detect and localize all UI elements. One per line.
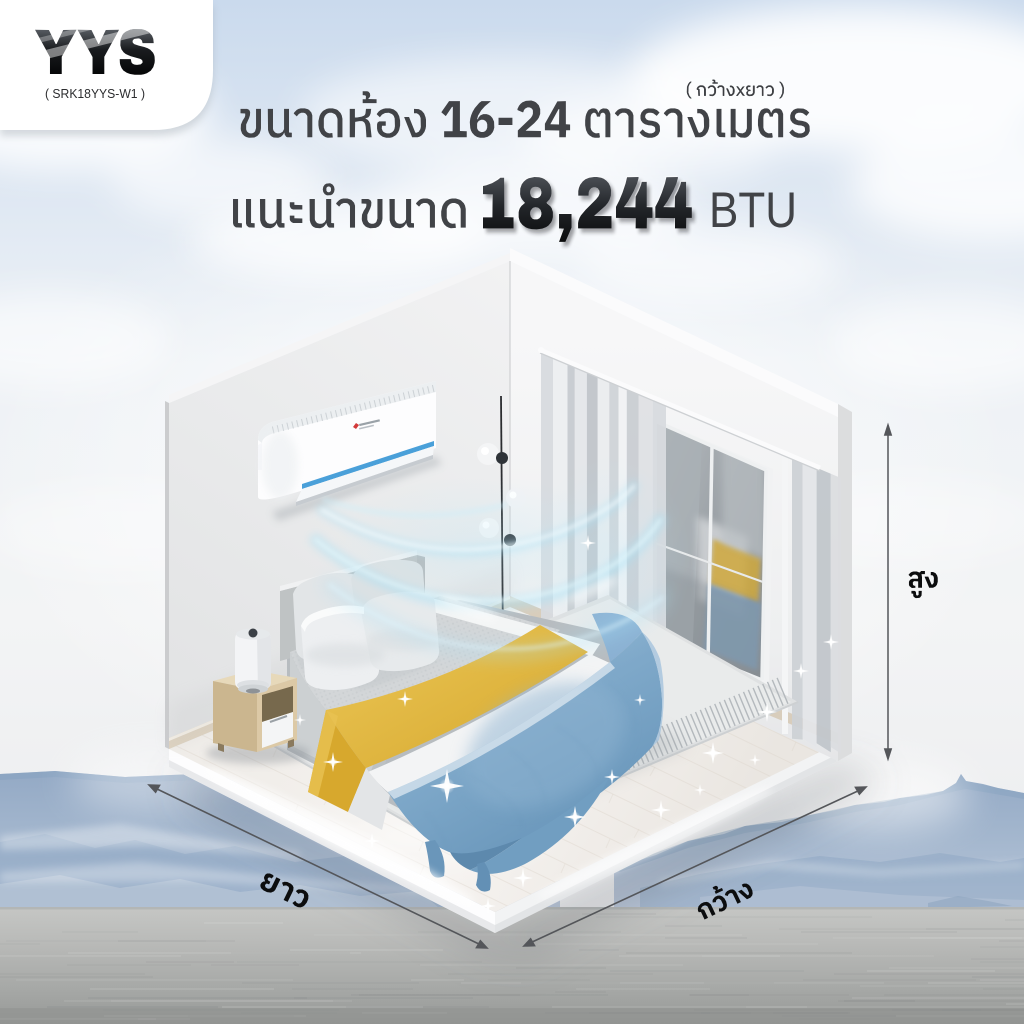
svg-text:BTU: BTU [709, 181, 797, 238]
svg-text:( SRK18YYS-W1 ): ( SRK18YYS-W1 ) [45, 86, 145, 101]
